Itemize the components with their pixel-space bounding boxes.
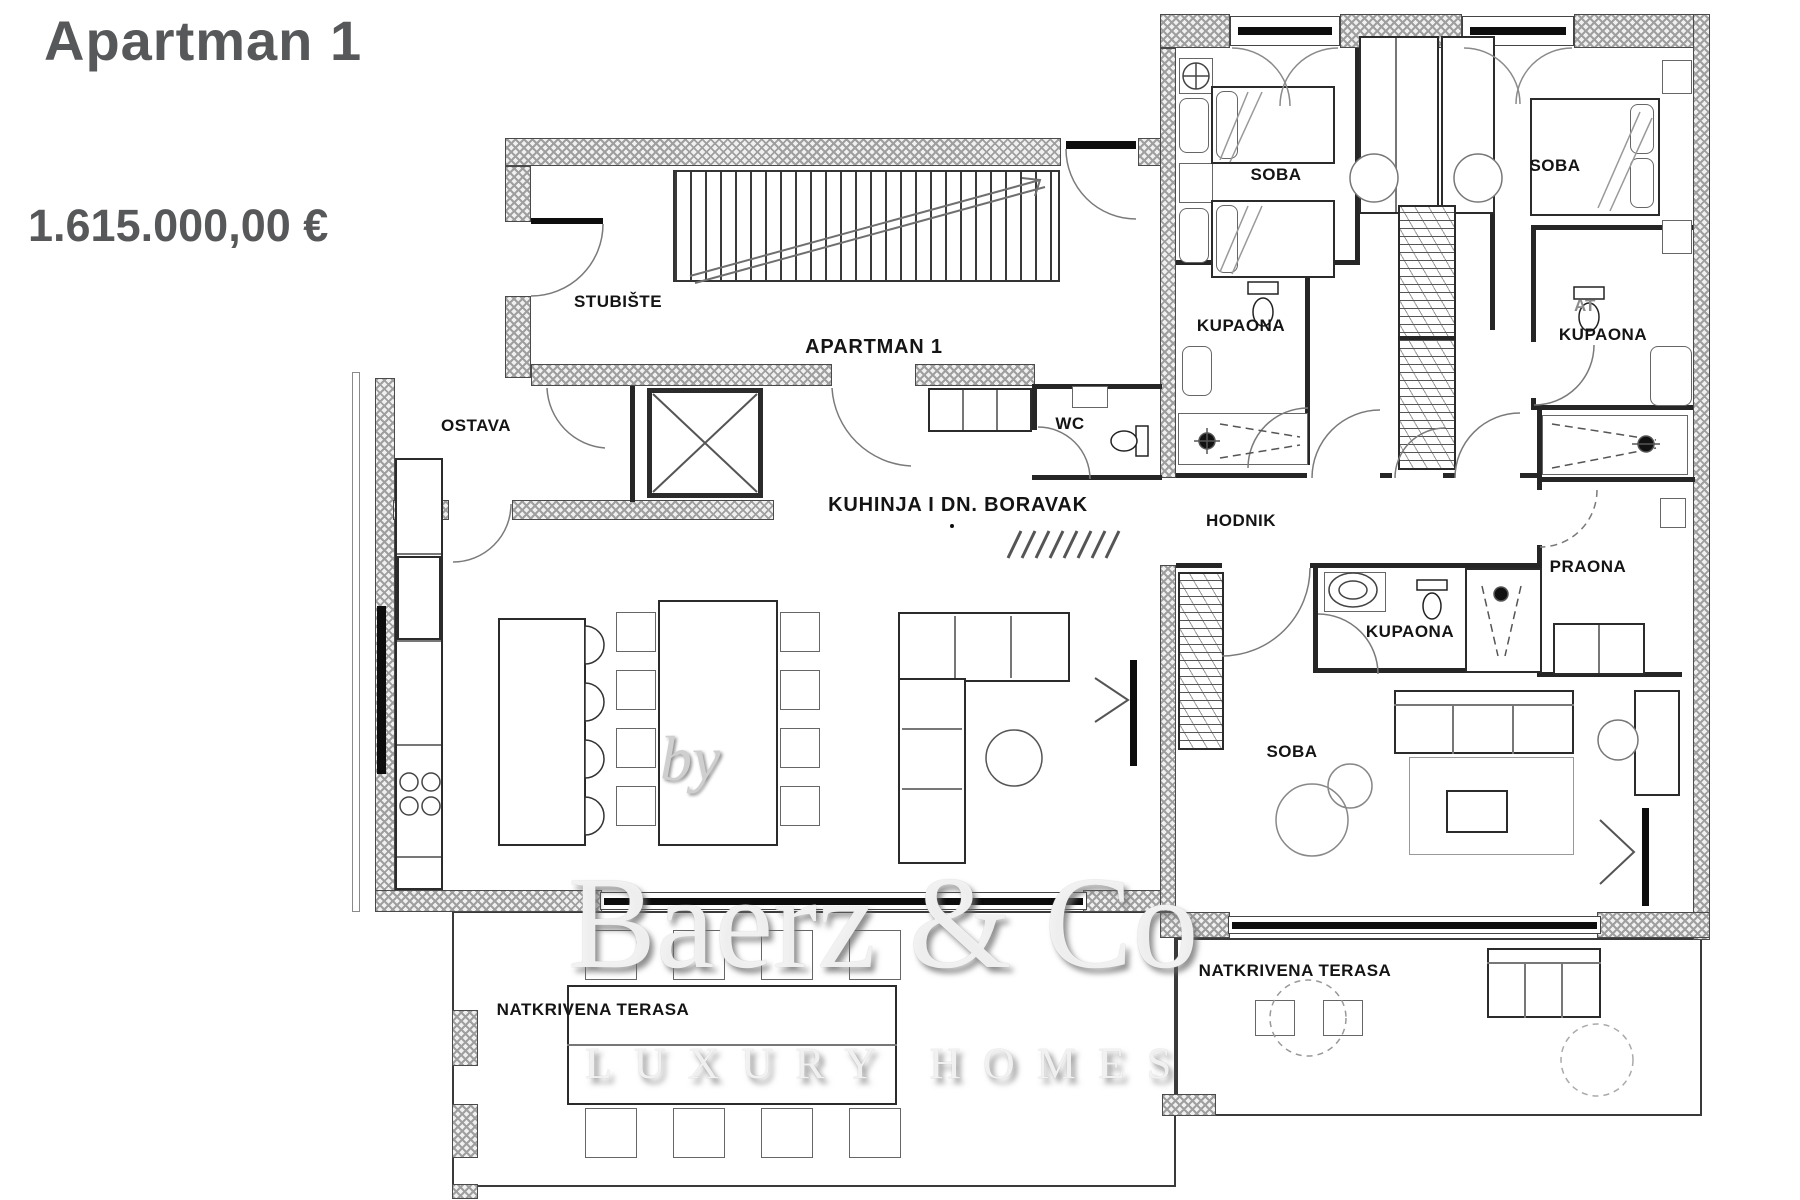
wall-hodnik-top-d: [1520, 473, 1540, 478]
room-label-stubiste: STUBIŠTE: [574, 292, 662, 312]
soba3-coffee-table: [1446, 790, 1508, 833]
wall-praona-left-a: [1537, 482, 1542, 490]
round-coffee-table-icon: [986, 730, 1042, 786]
room-label-kupaona-2: KUPAONA: [1559, 325, 1647, 345]
counter-divider-4: [397, 856, 441, 858]
terrace-sofa-line: [1524, 964, 1526, 1018]
window-kitchen-west: [377, 606, 386, 774]
terrace-chair: [849, 1108, 901, 1158]
kupaona3-shower: [1465, 568, 1542, 673]
wall-hodnik-bottom-a: [1176, 563, 1222, 568]
floor-plan-page: Apartman 1 1.615.000,00 €: [0, 0, 1800, 1200]
soba3-sofa-line: [1394, 704, 1574, 706]
room-label-kupaona-3: KUPAONA: [1366, 622, 1454, 642]
wardrobe-central-divider: [1398, 336, 1456, 340]
sofa-cushion-line: [954, 616, 956, 678]
kitchen-counter: [395, 458, 443, 890]
window-soba2-glass: [1470, 27, 1566, 35]
soba3-sofa-line: [1512, 706, 1514, 754]
wall-wing-bottom-b: [1597, 912, 1710, 938]
wall-hodnik-top-a: [1176, 473, 1307, 478]
sofa-top: [898, 612, 1070, 682]
dining-chair: [780, 728, 820, 768]
wall-kupaona2-left-a: [1531, 225, 1536, 342]
room-label-soba-1: SOBA: [1250, 165, 1301, 185]
wall-wc-bottom: [1032, 475, 1162, 480]
terrace-chair: [673, 1108, 725, 1158]
watermark-brand: Baerz & Co: [568, 846, 1198, 999]
soba2-nightstand-b: [1662, 220, 1692, 254]
wall-ostava-bottom-b: [512, 500, 774, 520]
soba3-desk: [1634, 690, 1680, 796]
room-label-soba-3: SOBA: [1266, 742, 1317, 762]
room-label-kuhinja: KUHINJA I DN. BORAVAK: [828, 494, 1088, 517]
room-label-terasa-right: NATKRIVENA TERASA: [1199, 961, 1392, 981]
room-label-wc: WC: [1055, 414, 1084, 434]
soba1-pillow-a: [1216, 91, 1238, 159]
terrace-pillar-4: [1162, 1094, 1216, 1116]
terrace-chair: [761, 1108, 813, 1158]
wall-hodnik-top-b: [1380, 473, 1392, 478]
room-label-soba-2: SOBA: [1529, 156, 1580, 176]
armchair-icon-soba3: [1276, 764, 1372, 856]
wing-desk-b: [1441, 36, 1495, 214]
tv-soba3: [1642, 808, 1649, 906]
sofa-left: [898, 678, 966, 864]
soba1-cabinet-top: [1179, 58, 1213, 94]
kupaona3-vanity: [1324, 572, 1386, 612]
elevator-shaft: [647, 388, 763, 498]
price-label: 1.615.000,00 €: [28, 200, 328, 252]
kupaona1-sink: [1182, 346, 1212, 396]
room-label-ostava: OSTAVA: [441, 416, 511, 436]
soba2-nightstand-a: [1662, 60, 1692, 94]
soba1-nightstand-a: [1179, 98, 1209, 153]
page-title: Apartman 1: [44, 8, 362, 73]
room-label-hodnik: HODNIK: [1206, 511, 1276, 531]
terrace-pillar-3: [452, 1184, 478, 1199]
stair-door-leaf: [531, 218, 603, 224]
staircase: [673, 170, 1060, 282]
kitchen-island: [498, 618, 586, 846]
soba2-pillow-a: [1630, 104, 1654, 154]
room-label-terasa-left: NATKRIVENA TERASA: [497, 1000, 690, 1020]
dining-chair: [780, 612, 820, 652]
wall-kupaona3-bottom: [1313, 668, 1467, 673]
terrace-right-sofa: [1487, 948, 1601, 1018]
counter-divider-1: [397, 553, 441, 555]
sofa-cushion-line: [902, 728, 962, 730]
washer-divider: [1598, 625, 1600, 673]
dining-chair: [616, 728, 656, 768]
wc-sink: [1072, 386, 1108, 408]
terrace-sofa-line: [1487, 962, 1601, 964]
watermark-tagline: LUXURY HOMES: [585, 1038, 1193, 1089]
counter-divider-3: [397, 744, 441, 746]
wall-wing-right: [1693, 14, 1710, 940]
wing-desk-a: [1359, 36, 1439, 214]
kupaona1-shower: [1178, 413, 1308, 465]
terrace-chair: [585, 1108, 637, 1158]
wall-wing-left-a: [1160, 48, 1176, 478]
soba3-sofa-line: [1452, 706, 1454, 754]
toilet-icon-wc: [1111, 426, 1148, 456]
window-soba1-glass: [1238, 27, 1332, 35]
soba2-pillow-b: [1630, 158, 1654, 208]
sideboard: [928, 388, 1032, 432]
radiator-hatch-icon: [1008, 531, 1119, 558]
wall-ostava-right: [630, 386, 635, 502]
wall-stair-top-a: [505, 138, 1061, 166]
toilet-icon-kupaona3: [1417, 580, 1447, 619]
wall-stair-bottom-a: [531, 364, 832, 386]
terrace-sofa-line: [1561, 964, 1563, 1018]
sideboard-divider: [962, 390, 964, 430]
praona-fixture: [1660, 498, 1686, 528]
soba3-sofa: [1394, 690, 1574, 754]
soba1-nightstand-b: [1179, 208, 1209, 263]
dining-chair: [780, 786, 820, 826]
island-stool-icons: [585, 626, 604, 835]
room-label-praona: PRAONA: [1550, 557, 1627, 577]
dining-chair: [616, 612, 656, 652]
kupaona2-bathtub: [1650, 346, 1692, 406]
sofa-cushion-line: [1010, 616, 1012, 678]
soba3-closet: [1178, 572, 1224, 750]
wall-kupaona3-left: [1313, 568, 1318, 672]
terrace-right-chair: [1323, 1000, 1363, 1036]
counter-divider-2: [397, 640, 441, 642]
dining-chair: [780, 670, 820, 710]
wall-wing-top-c: [1574, 14, 1710, 48]
wall-wing-top-a: [1160, 14, 1230, 48]
watermark-artifact: AT: [1574, 296, 1595, 316]
terrace-right-chair: [1255, 1000, 1295, 1036]
wing-desk-a-line: [1395, 38, 1397, 212]
wall-wc-left: [1032, 384, 1037, 430]
wall-stair-left-b: [505, 296, 531, 378]
kupaona2-shower: [1542, 415, 1688, 475]
roof-overhang-line: [352, 372, 360, 912]
wall-stair-left-a: [505, 166, 531, 222]
wall-praona-top: [1537, 477, 1695, 482]
dining-chair: [616, 786, 656, 826]
entry-door-leaf: [1066, 141, 1136, 149]
room-label-apartman: APARTMAN 1: [805, 336, 943, 359]
soba1-pillow-b: [1216, 205, 1238, 273]
tv-living: [1130, 660, 1137, 766]
sofa-cushion-line: [902, 788, 962, 790]
watermark-by: by: [660, 722, 720, 796]
plan-dot: [950, 524, 954, 528]
soba1-cabinet-mid: [1179, 163, 1213, 203]
dining-chair: [616, 670, 656, 710]
terrace-pillar-1: [452, 1010, 478, 1066]
wall-hodnik-top-c: [1443, 473, 1455, 478]
kitchen-tall-cabinet: [397, 556, 441, 640]
wall-stair-bottom-b: [915, 364, 1035, 386]
slider-soba3-glass: [1232, 922, 1597, 929]
terrace-pillar-2: [452, 1104, 478, 1158]
sideboard-divider: [996, 390, 998, 430]
room-label-kupaona-1: KUPAONA: [1197, 316, 1285, 336]
